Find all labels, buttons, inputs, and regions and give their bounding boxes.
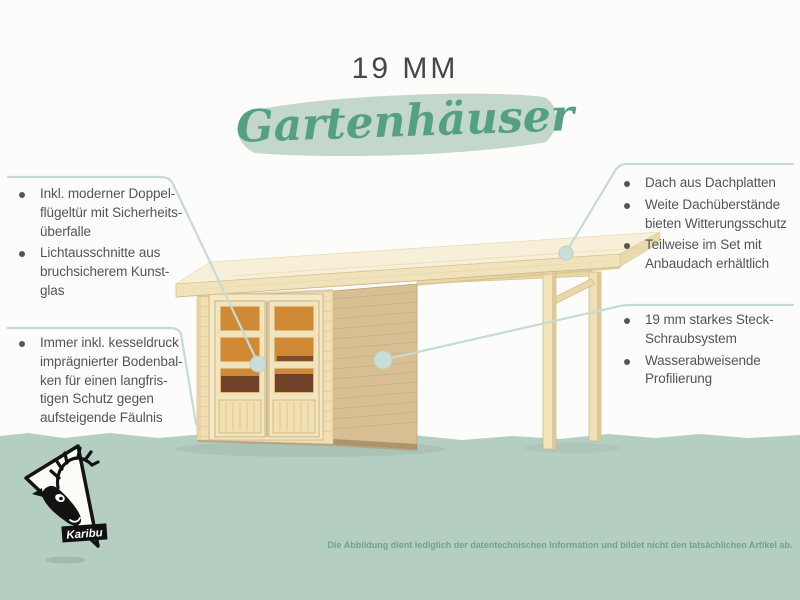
feature-item: Weite Dachüberstände bieten Witterungssc… — [621, 196, 799, 234]
feature-group-left-top: Inkl. moderner Doppel- flügeltür mit Sic… — [16, 185, 196, 304]
feature-item: Inkl. moderner Doppel- flügeltür mit Sic… — [16, 185, 196, 241]
bullet-icon — [19, 341, 25, 347]
feature-item: Lichtausschnitte aus bruchsicherem Kunst… — [16, 244, 196, 300]
feature-group-left-bottom: Immer inkl. kesseldruck imprägnierter Bo… — [16, 334, 196, 431]
feature-group-right-top: Dach aus Dachplatten Weite Dachüberständ… — [621, 174, 799, 277]
feature-text: Weite Dachüberstände bieten Witterungssc… — [645, 196, 787, 234]
feature-item: Immer inkl. kesseldruck imprägnierter Bo… — [16, 334, 196, 428]
headline: 19 MM Gartenhäuser — [200, 52, 610, 162]
infographic-page: { "title": { "size_label": "19 MM", "pro… — [0, 0, 800, 600]
karibu-logo: Karibu — [8, 436, 118, 571]
bullet-icon — [624, 181, 630, 187]
feature-item: Wasserabweisende Profilierung — [621, 352, 799, 390]
feature-text: Immer inkl. kesseldruck imprägnierter Bo… — [40, 334, 183, 428]
bullet-icon — [624, 243, 630, 249]
feature-text: Teilweise im Set mit Anbaudach erhältlic… — [645, 236, 769, 274]
bullet-icon — [624, 203, 630, 209]
bullet-icon — [19, 251, 25, 257]
feature-group-right-bottom: 19 mm starkes Steck- Schraubsystem Wasse… — [621, 311, 799, 392]
roof-callout-dot — [559, 246, 573, 260]
feature-text: Dach aus Dachplatten — [645, 174, 776, 193]
feature-item: Dach aus Dachplatten — [621, 174, 799, 193]
wall-callout-dot — [374, 351, 392, 369]
logo-shadow — [46, 557, 86, 564]
disclaimer-text: Die Abbildung dient lediglich der datent… — [324, 540, 796, 550]
feature-item: 19 mm starkes Steck- Schraubsystem — [621, 311, 799, 349]
page-title: 19 MM — [200, 52, 610, 86]
feature-text: Inkl. moderner Doppel- flügeltür mit Sic… — [40, 185, 182, 241]
logo-brand-text: Karibu — [66, 527, 103, 542]
feature-text: Lichtausschnitte aus bruchsicherem Kunst… — [40, 244, 169, 300]
bullet-icon — [19, 192, 25, 198]
logo-wordmark: Karibu — [61, 523, 107, 542]
bullet-icon — [624, 318, 630, 324]
bullet-icon — [624, 359, 630, 365]
door-callout-dot — [250, 356, 266, 372]
feature-item: Teilweise im Set mit Anbaudach erhältlic… — [621, 236, 799, 274]
feature-text: 19 mm starkes Steck- Schraubsystem — [645, 311, 774, 349]
product-title-wrap: Gartenhäuser — [200, 88, 610, 162]
feature-text: Wasserabweisende Profilierung — [645, 352, 761, 390]
